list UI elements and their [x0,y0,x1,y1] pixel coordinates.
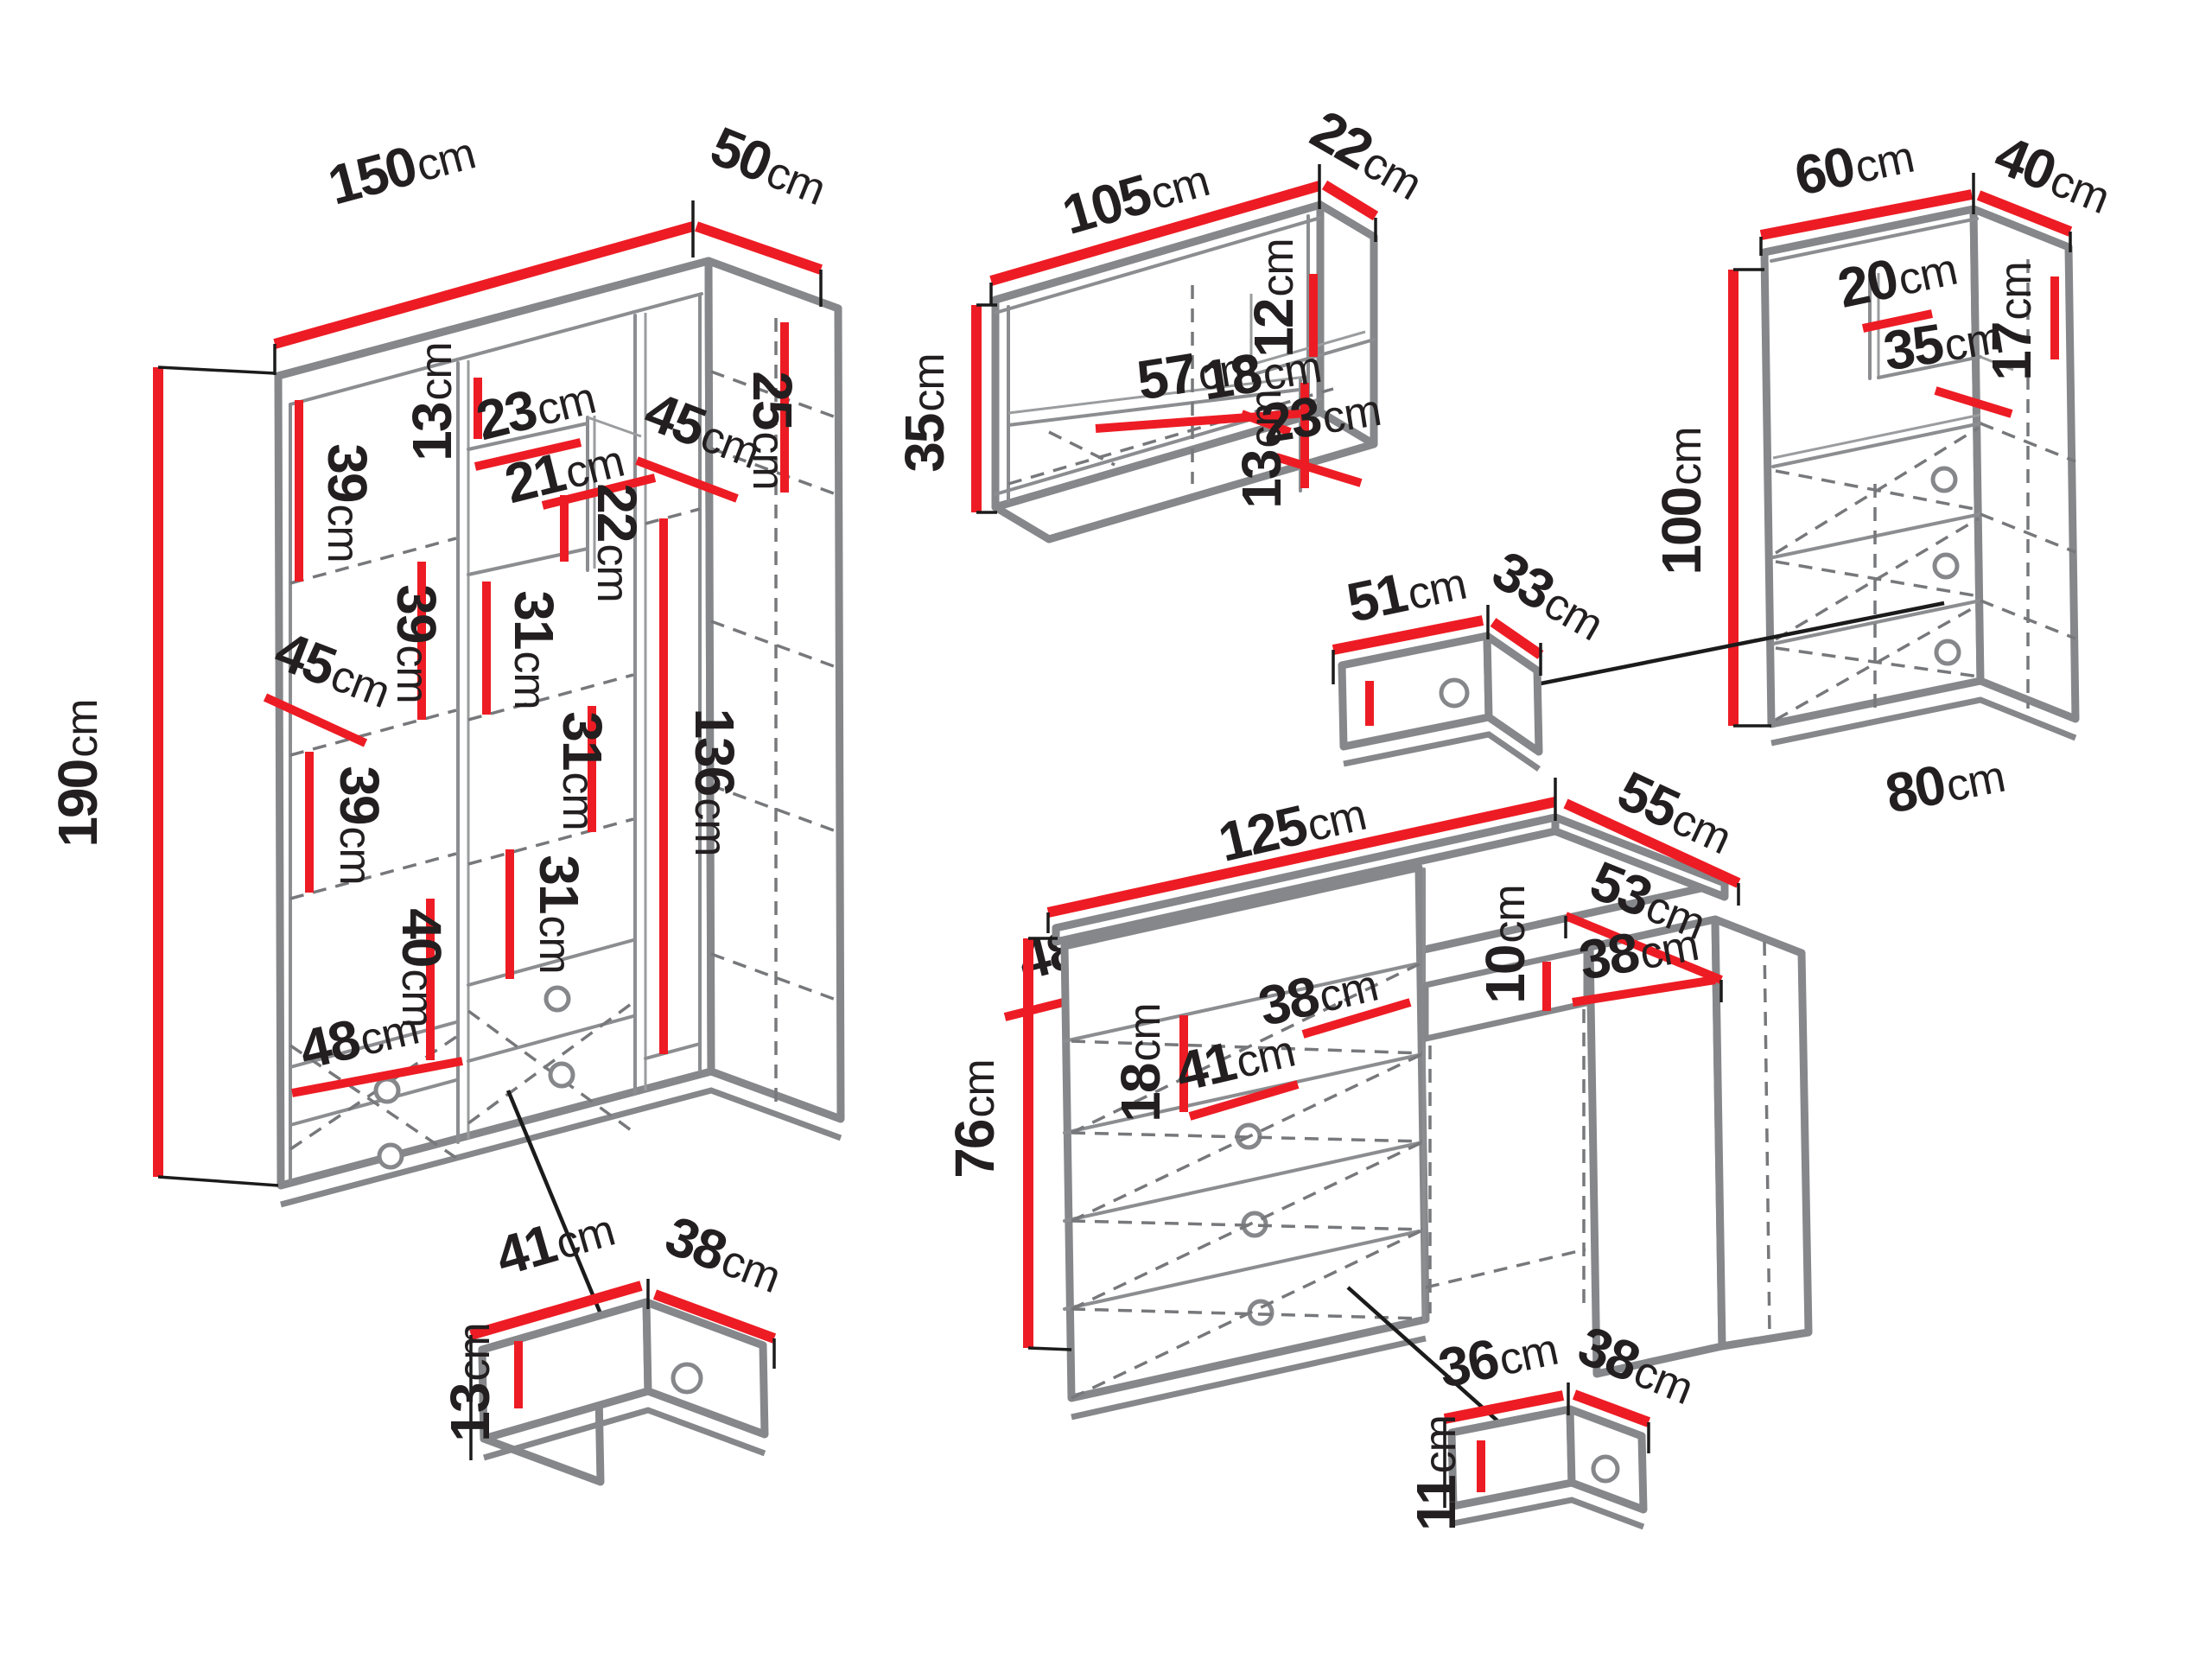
wardrobe-drawer-knob [546,988,569,1010]
chest-drawer-knob [1933,468,1955,491]
desk-drawer-height-label: 11cm [1405,1415,1467,1531]
wardrobe-drawer-knob [376,1079,398,1102]
wall-shelf-height-label: 35cm [893,353,956,473]
chest-drawer-drawing: 51cm 33cm [1333,538,1617,769]
chest-drawer-knob [1441,680,1467,706]
chest-width-label: 60cm [1789,122,1918,207]
wall-shelf-width-label: 105cm [1056,146,1215,246]
diagram-canvas: 150cm 50cm 190cm 39cm 13cm 23cm 21cm 45c… [0,0,2212,1659]
wardrobe-drawer-drawing: 41cm 38cm 13cm [439,1195,791,1482]
desk-height-label: 76cm [944,1059,1006,1179]
chest-drawer-knob [1935,555,1957,577]
wardrobe-depth-label: 50cm [702,114,836,216]
wardrobe-height-label: 190cm [47,699,109,847]
wardrobe-drawer-knob [550,1064,573,1086]
chest-height-label: 100cm [1650,427,1713,575]
wardrobe-drawer-width-label: 41cm [489,1195,620,1287]
wardrobe-drawer-depth-label: 38cm [658,1204,791,1304]
chest-drawing: 60cm 40cm 100cm 80cm 20cm 35cm 17cm [1650,122,2120,825]
wall-shelf-drawing: 105cm 22cm 35cm 57cm 13cm 18cm 23cm 12cm [893,98,1435,539]
desk-drawer-knob [1593,1457,1618,1481]
chest-drawer-depth-label: 33cm [1482,538,1616,652]
chest-base-width-label: 80cm [1880,741,2009,825]
wardrobe-width-label: 150cm [321,118,480,217]
wardrobe-drawer-knob [673,1364,701,1392]
desk-drawing: 125cm 55cm 76cm 53cm 38cm 10cm 38cm 41cm… [944,759,1808,1417]
chest-drawer-knob [1936,641,1959,664]
desk-drawer-width-label: 36cm [1433,1314,1562,1400]
furniture-dimension-diagram: 150cm 50cm 190cm 39cm 13cm 23cm 21cm 45c… [0,0,2212,1659]
wardrobe-drawer-knob [379,1145,402,1167]
